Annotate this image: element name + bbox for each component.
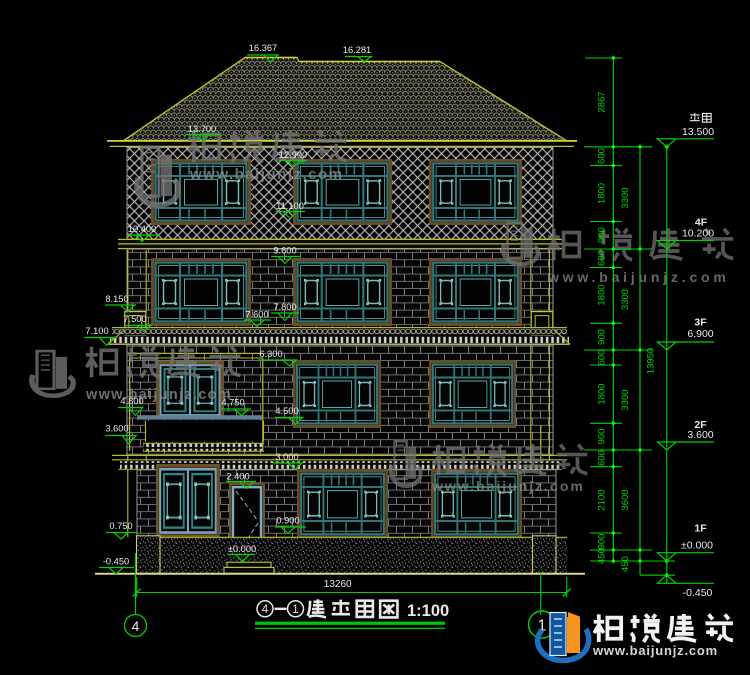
svg-text:2100: 2100 [597,489,608,510]
svg-text:13.500: 13.500 [682,126,714,138]
svg-text:13260: 13260 [324,579,352,590]
svg-text:www.baijunjz.com: www.baijunjz.com [85,387,232,403]
svg-text:4: 4 [262,604,269,616]
svg-text:450: 450 [620,556,631,572]
svg-text:6.300: 6.300 [259,349,282,359]
svg-text:900: 900 [597,429,608,445]
svg-text:1800: 1800 [597,383,608,404]
svg-text:4.800: 4.800 [120,396,143,406]
svg-text:900: 900 [597,329,608,345]
svg-text:7.500: 7.500 [123,314,146,324]
svg-text:3600: 3600 [620,489,631,510]
svg-text:600: 600 [597,450,608,466]
svg-text:3300: 3300 [620,187,631,208]
svg-text:4.500: 4.500 [275,406,298,416]
svg-text:16.281: 16.281 [343,45,371,55]
svg-text:±0.000: ±0.000 [228,544,256,554]
svg-text:7.100: 7.100 [85,326,108,336]
svg-text:3.600: 3.600 [105,424,128,434]
svg-text:4: 4 [132,618,140,634]
svg-text:10.200: 10.200 [682,228,714,240]
svg-text:900: 900 [597,227,608,243]
svg-text:±0.000: ±0.000 [681,540,713,552]
svg-text:www.baijunjz.com: www.baijunjz.com [189,166,343,183]
svg-text:2867: 2867 [597,91,608,112]
svg-text:3300: 3300 [620,289,631,310]
svg-text:6.900: 6.900 [687,328,713,340]
svg-text:9.600: 9.600 [273,246,296,256]
svg-text:1800: 1800 [597,284,608,305]
svg-text:-0.450: -0.450 [103,557,129,567]
svg-text:10.400: 10.400 [128,224,156,234]
svg-text:600: 600 [597,250,608,266]
svg-text:4.750: 4.750 [221,398,244,408]
svg-text:13950: 13950 [646,348,657,374]
svg-text:1: 1 [292,604,298,616]
svg-text:600: 600 [597,350,608,366]
svg-text:www.baijunjz.com: www.baijunjz.com [547,269,730,285]
svg-text:11.100: 11.100 [276,201,304,211]
svg-text:0.900: 0.900 [276,516,299,526]
svg-text:0.750: 0.750 [109,521,132,531]
svg-text:1F: 1F [694,523,707,535]
svg-text:1800: 1800 [597,183,608,204]
svg-text:8.150: 8.150 [105,294,128,304]
svg-text:600: 600 [597,148,608,164]
svg-text:12.900: 12.900 [279,150,307,160]
svg-text:7.800: 7.800 [273,302,296,312]
svg-text:13.700: 13.700 [188,124,216,134]
svg-text:2.400: 2.400 [226,472,249,482]
svg-text:3F: 3F [694,317,707,329]
svg-text:-0.450: -0.450 [683,587,713,599]
svg-text:3.600: 3.600 [687,429,713,441]
svg-text:3300: 3300 [620,389,631,410]
svg-text:3.000: 3.000 [275,452,298,462]
svg-text:7.600: 7.600 [245,310,268,320]
svg-text:450: 450 [597,548,608,564]
svg-text:www.baijunjz.com: www.baijunjz.com [431,478,585,494]
svg-text:1:100: 1:100 [407,602,449,620]
svg-text:900: 900 [597,534,608,550]
svg-text:16.367: 16.367 [249,43,277,53]
svg-text:www.baijunjz.com: www.baijunjz.com [592,643,718,658]
